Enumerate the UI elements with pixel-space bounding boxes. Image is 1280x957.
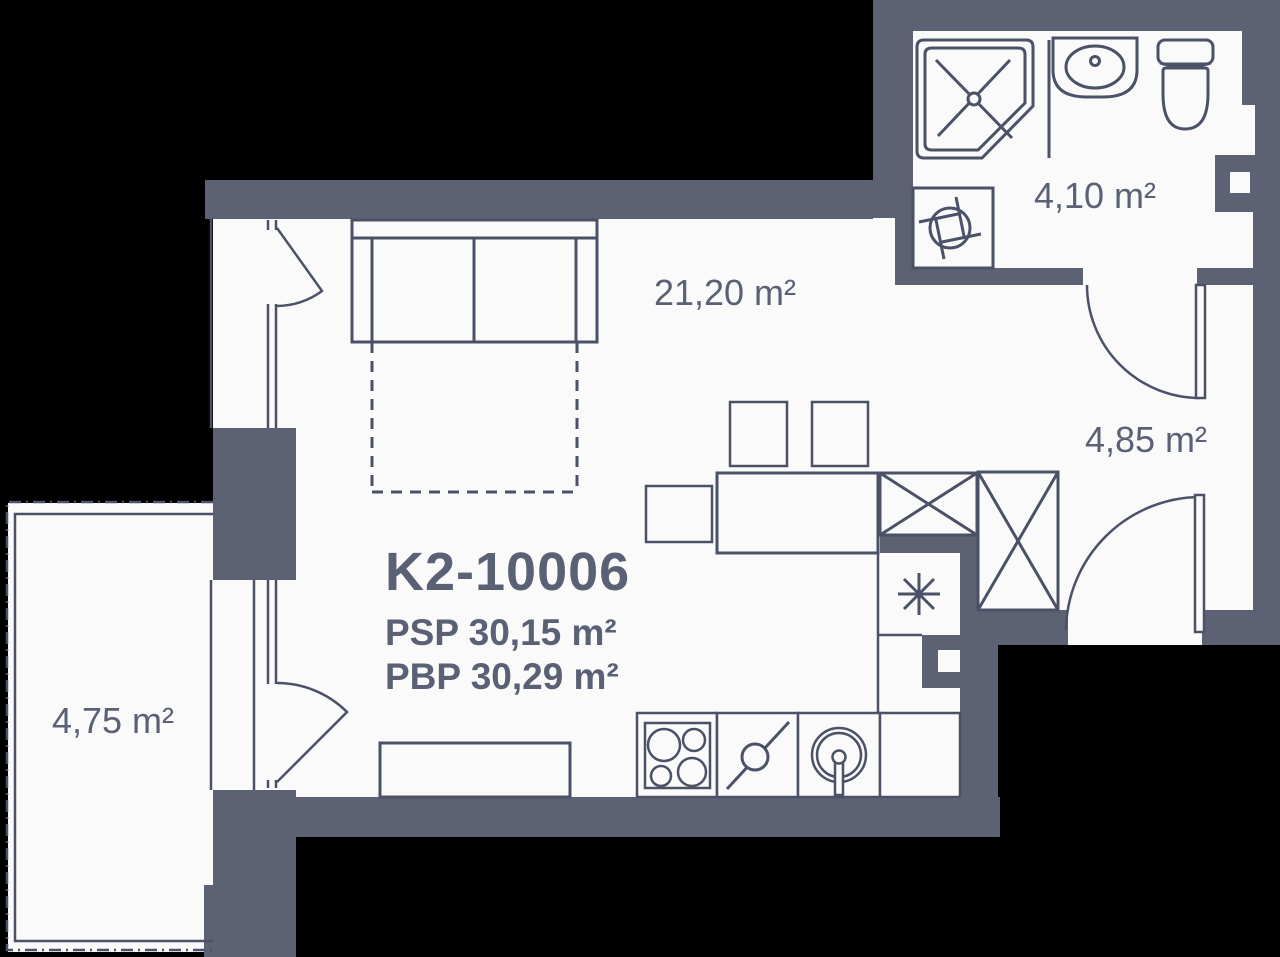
balcony-door-lower [277, 683, 347, 782]
chair [730, 402, 787, 466]
pbp-area: PBP 30,29 m² [385, 655, 630, 699]
area-label-hallway: 4,85 m² [1031, 419, 1261, 461]
unit-id: K2-10006 [385, 545, 630, 599]
bathroom-door [1087, 285, 1205, 398]
kitchen-tall-cabinet [880, 473, 977, 535]
floor-plan: 21,20 m² 4,10 m² 4,85 m² 4,75 m² K2-1000… [0, 0, 1280, 957]
bed-dashed-outline [372, 342, 577, 492]
bathroom-sink-icon [1053, 38, 1137, 97]
shaft-room [878, 553, 940, 713]
balcony-door-upper [277, 228, 322, 306]
window-left [211, 218, 276, 790]
sofa [352, 220, 597, 342]
hallway-wardrobe [978, 472, 1058, 610]
dining-set [646, 402, 878, 553]
vent-asterisk-icon [898, 573, 940, 615]
plan-linework [0, 0, 1280, 957]
dining-table [717, 473, 878, 553]
psp-area: PSP 30,15 m² [385, 611, 630, 655]
entrance-door [1066, 495, 1204, 632]
kitchen-counter [637, 713, 960, 797]
area-label-balcony: 4,75 m² [18, 700, 208, 742]
toilet-icon [1158, 40, 1213, 129]
title-block: K2-10006 PSP 30,15 m² PBP 30,29 m² [385, 545, 630, 698]
tv-stand [380, 743, 570, 797]
chair [812, 402, 868, 466]
washing-machine-icon [913, 188, 993, 268]
area-label-bathroom: 4,10 m² [985, 175, 1205, 217]
chair [646, 486, 712, 542]
area-label-living: 21,20 m² [600, 272, 850, 314]
shower-icon [917, 40, 1049, 158]
